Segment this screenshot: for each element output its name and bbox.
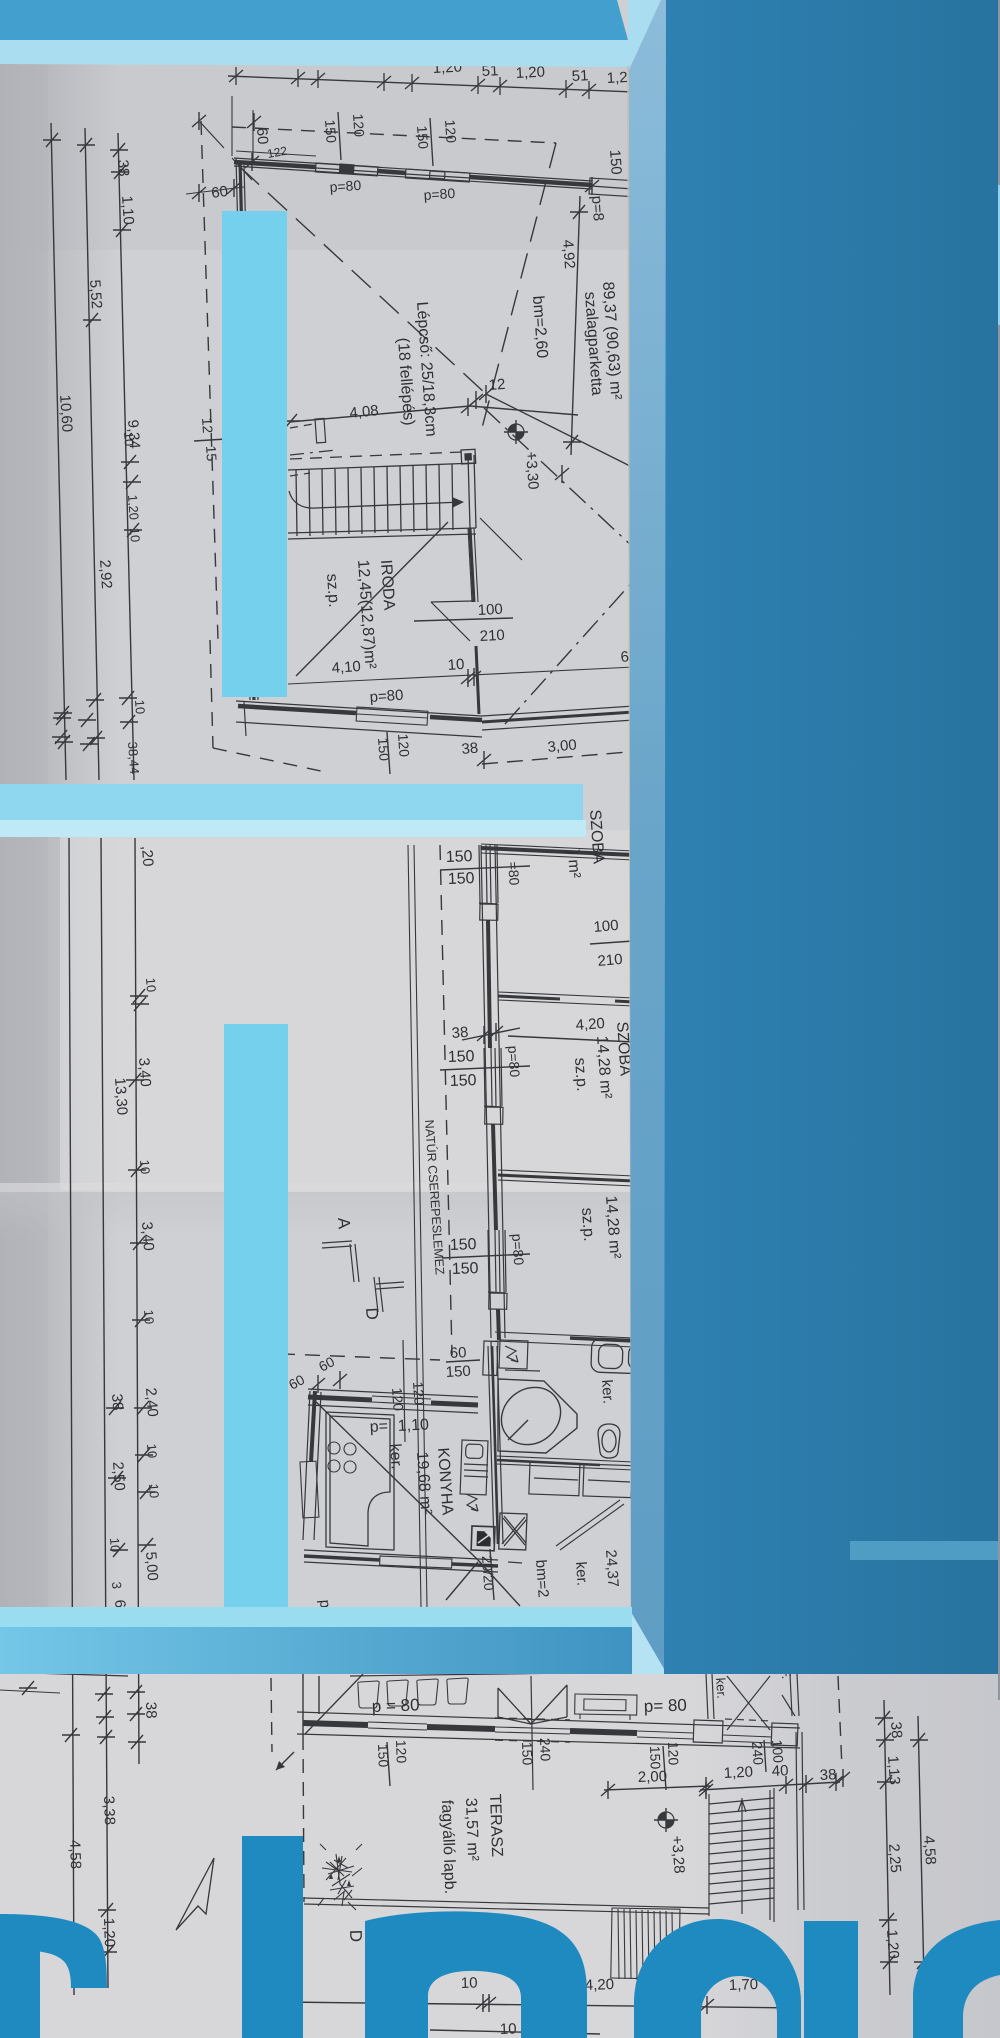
svg-text:1,13: 1,13 (884, 1755, 903, 1785)
svg-text:10: 10 (137, 1159, 153, 1174)
svg-text:sz.p.: sz.p. (323, 573, 342, 608)
svg-text:bm=2: bm=2 (532, 1559, 552, 1598)
svg-text:150: 150 (448, 870, 475, 888)
svg-text:10: 10 (447, 656, 465, 674)
svg-text:38: 38 (108, 1393, 126, 1411)
svg-text:10: 10 (500, 2020, 517, 2038)
svg-text:38: 38 (114, 159, 132, 177)
svg-text:1,20: 1,20 (723, 1763, 753, 1782)
svg-text:fagyálló lapb.: fagyálló lapb. (438, 1800, 458, 1895)
svg-text:150: 150 (375, 1744, 392, 1768)
svg-text:p=80: p=80 (329, 177, 362, 195)
svg-text:100: 100 (477, 601, 503, 619)
svg-text:ker.: ker. (598, 1379, 617, 1404)
svg-text:10: 10 (461, 1974, 478, 1992)
svg-text:10: 10 (144, 1443, 160, 1458)
svg-text:150: 150 (450, 1236, 477, 1254)
svg-text:10: 10 (146, 1483, 162, 1498)
svg-text:4,08: 4,08 (349, 402, 380, 422)
svg-text:120: 120 (393, 1740, 410, 1764)
svg-text:p = 80: p = 80 (371, 1695, 419, 1716)
svg-text:ker.: ker. (386, 1443, 405, 1470)
svg-text:31,57 m²: 31,57 m² (462, 1798, 481, 1862)
svg-text:p=: p= (369, 1418, 388, 1436)
svg-text:150: 150 (445, 1363, 471, 1381)
svg-text:4,92: 4,92 (559, 239, 578, 269)
svg-text:ker.: ker. (572, 1561, 591, 1586)
svg-text:210: 210 (597, 951, 623, 970)
svg-text:D: D (362, 1307, 382, 1321)
svg-text:120: 120 (410, 1381, 428, 1406)
svg-text:p=80: p=80 (509, 1233, 527, 1266)
svg-text:1,20: 1,20 (100, 1918, 118, 1948)
svg-text:4,58: 4,58 (920, 1835, 939, 1865)
svg-text:38: 38 (451, 1024, 469, 1042)
svg-text:p=8: p=8 (588, 195, 607, 222)
svg-text:) m²: ) m² (564, 849, 583, 879)
svg-text:2,40: 2,40 (142, 1387, 161, 1417)
svg-text:2,92: 2,92 (96, 559, 115, 589)
svg-text:60: 60 (253, 127, 271, 145)
svg-text:=80: =80 (505, 861, 523, 886)
svg-text:150: 150 (375, 737, 393, 762)
svg-text:12: 12 (199, 417, 216, 434)
svg-text:3,38: 3,38 (100, 1796, 118, 1826)
svg-text:10: 10 (141, 1309, 157, 1324)
svg-text:p=80: p=80 (369, 687, 404, 706)
svg-text:A: A (334, 1217, 354, 1230)
svg-text:100: 100 (593, 917, 619, 936)
svg-text:150: 150 (414, 125, 432, 150)
svg-text:38: 38 (819, 1766, 837, 1784)
svg-text:2,00: 2,00 (638, 1768, 668, 1786)
svg-text:D: D (346, 1929, 365, 1942)
svg-text:1,20: 1,20 (125, 494, 142, 520)
svg-text:1,10: 1,10 (118, 195, 137, 225)
svg-text:IRODA: IRODA (377, 559, 398, 611)
svg-text:4,20: 4,20 (585, 1976, 615, 1994)
svg-text:1,2: 1,2 (606, 69, 628, 87)
svg-text:4,20: 4,20 (575, 1015, 605, 1034)
svg-text:120: 120 (389, 1387, 407, 1412)
svg-text:60: 60 (210, 183, 229, 202)
svg-text:+3,28: +3,28 (668, 1835, 688, 1874)
svg-text:sz.p.: sz.p. (571, 1057, 590, 1092)
svg-text:3,40: 3,40 (135, 1057, 154, 1087)
svg-text:10: 10 (143, 977, 159, 992)
svg-text:TERASZ: TERASZ (486, 1794, 505, 1858)
svg-text:120: 120 (350, 113, 368, 138)
svg-text:10,60: 10,60 (56, 394, 76, 433)
svg-text:12: 12 (488, 376, 506, 394)
svg-text:10: 10 (132, 699, 148, 714)
svg-text:24,37: 24,37 (602, 1549, 622, 1588)
svg-text:240: 240 (537, 1738, 554, 1762)
svg-text:120: 120 (395, 733, 413, 758)
svg-text:150: 150 (647, 1746, 664, 1770)
svg-text:3,40: 3,40 (138, 1221, 157, 1251)
svg-text:51: 51 (571, 67, 589, 85)
svg-text:p=80: p=80 (505, 1045, 523, 1078)
svg-text:38: 38 (887, 1721, 905, 1739)
svg-text:38: 38 (142, 1702, 160, 1719)
svg-text:150: 150 (448, 1048, 475, 1066)
svg-text:1,10: 1,10 (397, 1416, 429, 1435)
svg-text:40: 40 (771, 1762, 789, 1780)
svg-text:,20: ,20 (138, 845, 156, 867)
svg-text:10: 10 (127, 527, 143, 542)
svg-text:1,20: 1,20 (883, 1929, 902, 1959)
svg-text:150: 150 (606, 149, 625, 175)
svg-text:20/20: 20/20 (479, 1555, 497, 1591)
svg-text:15: 15 (203, 445, 220, 462)
svg-text:+3,30: +3,30 (522, 451, 542, 490)
svg-text:10: 10 (107, 1537, 123, 1552)
svg-text:150: 150 (322, 119, 340, 144)
svg-text:3,00: 3,00 (547, 737, 578, 756)
svg-text:120: 120 (442, 119, 460, 144)
svg-text:150: 150 (452, 1260, 479, 1278)
svg-text:38: 38 (461, 740, 479, 758)
svg-text:2,50: 2,50 (109, 1461, 128, 1491)
svg-text:ker.: ker. (713, 1677, 729, 1699)
svg-text:5,00: 5,00 (142, 1551, 161, 1581)
svg-text:150: 150 (519, 1742, 536, 1766)
svg-text:6: 6 (620, 648, 630, 666)
svg-text:38,44: 38,44 (125, 741, 142, 775)
svg-text:p=80: p=80 (423, 185, 456, 203)
svg-text:sz.p.: sz.p. (578, 1207, 597, 1242)
svg-text:120: 120 (665, 1742, 682, 1766)
svg-text:4,10: 4,10 (331, 658, 361, 677)
svg-text:4,58: 4,58 (66, 1840, 84, 1870)
svg-text:p= 80: p= 80 (643, 1696, 687, 1716)
svg-text:100: 100 (769, 1739, 787, 1764)
svg-text:210: 210 (479, 627, 505, 645)
svg-text:10: 10 (121, 431, 137, 446)
svg-text:2,25: 2,25 (885, 1843, 904, 1873)
svg-text:60: 60 (449, 1344, 467, 1362)
svg-text:150: 150 (450, 1072, 477, 1090)
svg-text:5,52: 5,52 (86, 279, 105, 309)
svg-text:3: 3 (109, 1581, 124, 1589)
svg-text:150: 150 (446, 848, 473, 866)
svg-text:13,30: 13,30 (111, 1077, 131, 1116)
